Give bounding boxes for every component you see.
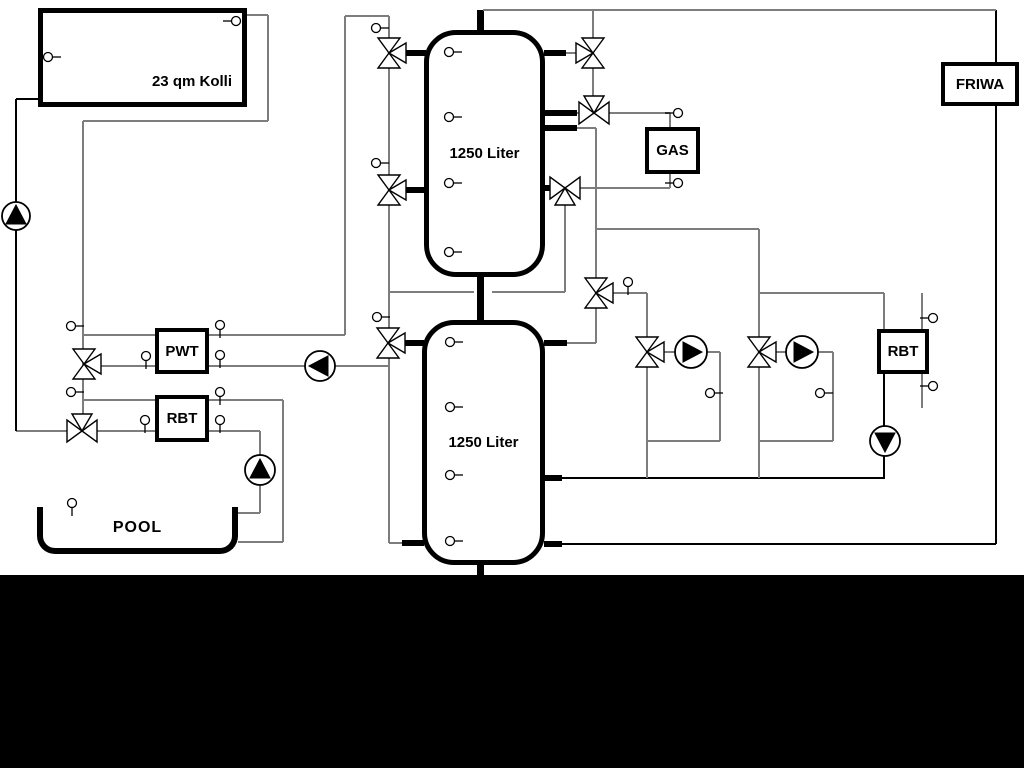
three-way-valve-icon (62, 411, 102, 451)
rbt-left-box: RBT (155, 395, 209, 442)
pipe-stub (477, 564, 484, 575)
pump-icon (866, 422, 904, 460)
three-way-valve-icon (576, 273, 616, 313)
pipe (646, 293, 648, 478)
temperature-sensor-icon (436, 393, 464, 421)
temperature-sensor-icon (363, 303, 391, 331)
three-way-valve-icon (574, 93, 614, 133)
pipe-stub (544, 475, 562, 481)
pipe (561, 543, 996, 545)
pipe (209, 365, 388, 367)
temperature-sensor-icon (362, 149, 390, 177)
pipe (388, 291, 474, 293)
pwt-label: PWT (165, 343, 198, 360)
temperature-sensor-icon (435, 169, 463, 197)
temperature-sensor-icon (436, 328, 464, 356)
temperature-sensor-icon (206, 378, 234, 406)
rbt-left-label: RBT (167, 410, 198, 427)
pump-icon (672, 333, 710, 371)
three-way-valve-icon (627, 332, 667, 372)
three-way-valve-icon (545, 168, 585, 208)
pipe-stub (544, 50, 566, 56)
pipe (564, 196, 566, 292)
friwa-station-box: FRIWA (941, 62, 1019, 106)
temperature-sensor-icon (57, 312, 85, 340)
three-way-valve-icon (739, 332, 779, 372)
pipe (83, 120, 268, 122)
pipe (83, 334, 155, 336)
temperature-sensor-icon (614, 268, 642, 296)
pipe (567, 342, 596, 344)
pipe-stub (544, 125, 577, 131)
temperature-sensor-icon (436, 461, 464, 489)
temperature-sensor-icon (206, 406, 234, 434)
temperature-sensor-icon (222, 7, 250, 35)
temperature-sensor-icon (34, 43, 62, 71)
rbt-right-box: RBT (877, 329, 929, 374)
temperature-sensor-icon (435, 103, 463, 131)
temperature-sensor-icon (362, 14, 390, 42)
pipe (483, 9, 996, 11)
pipe (267, 15, 269, 121)
gas-label: GAS (656, 142, 689, 159)
pipe (759, 440, 833, 442)
pipe-stub (544, 541, 562, 547)
pipe (995, 106, 997, 544)
pipe (15, 99, 17, 431)
pipe (344, 16, 346, 335)
pump-icon (0, 197, 35, 235)
pipe (561, 477, 885, 479)
letterbox-band (0, 575, 1024, 768)
pipe-stub (477, 10, 484, 32)
temperature-sensor-icon (696, 379, 724, 407)
gas-boiler-box: GAS (645, 127, 700, 174)
pool-label: POOL (113, 519, 162, 537)
hydraulic-schematic: 23 qm Kolli 1250 Liter 1250 Liter PWT RB… (0, 0, 1024, 768)
solar-collector-label: 23 qm Kolli (152, 73, 232, 90)
temperature-sensor-icon (806, 379, 834, 407)
buffer-tank-top-label: 1250 Liter (449, 145, 519, 162)
temperature-sensor-icon (435, 38, 463, 66)
buffer-tank-bottom-label: 1250 Liter (448, 434, 518, 451)
pump-icon (241, 451, 279, 489)
pipe (83, 399, 155, 401)
temperature-sensor-icon (436, 527, 464, 555)
pipe (995, 10, 997, 62)
temperature-sensor-icon (132, 342, 160, 370)
pump-icon (301, 347, 339, 385)
pipe-stub (402, 540, 424, 546)
pipe (883, 293, 885, 330)
pipe (647, 440, 720, 442)
pwt-heat-exchanger-box: PWT (155, 328, 209, 374)
pipe (389, 542, 402, 544)
pump-icon (783, 333, 821, 371)
pipe-stub (544, 110, 577, 116)
rbt-right-label: RBT (888, 343, 919, 360)
pipe-stub (477, 277, 484, 321)
pipe (247, 14, 268, 16)
temperature-sensor-icon (131, 406, 159, 434)
temperature-sensor-icon (664, 99, 692, 127)
temperature-sensor-icon (664, 169, 692, 197)
solar-collector-box: 23 qm Kolli (38, 8, 247, 107)
temperature-sensor-icon (919, 372, 947, 400)
pipe (596, 228, 759, 230)
temperature-sensor-icon (206, 311, 234, 339)
pipe (238, 512, 260, 514)
three-way-valve-icon (573, 33, 613, 73)
temperature-sensor-icon (919, 304, 947, 332)
temperature-sensor-icon (58, 489, 86, 517)
pipe (492, 291, 565, 293)
pipe-stub (544, 340, 567, 346)
temperature-sensor-icon (206, 341, 234, 369)
pipe (16, 98, 38, 100)
pipe (282, 400, 284, 542)
pipe (238, 541, 283, 543)
pipe (388, 16, 390, 543)
friwa-label: FRIWA (956, 76, 1004, 93)
temperature-sensor-icon (57, 378, 85, 406)
temperature-sensor-icon (435, 238, 463, 266)
pipe (759, 292, 884, 294)
